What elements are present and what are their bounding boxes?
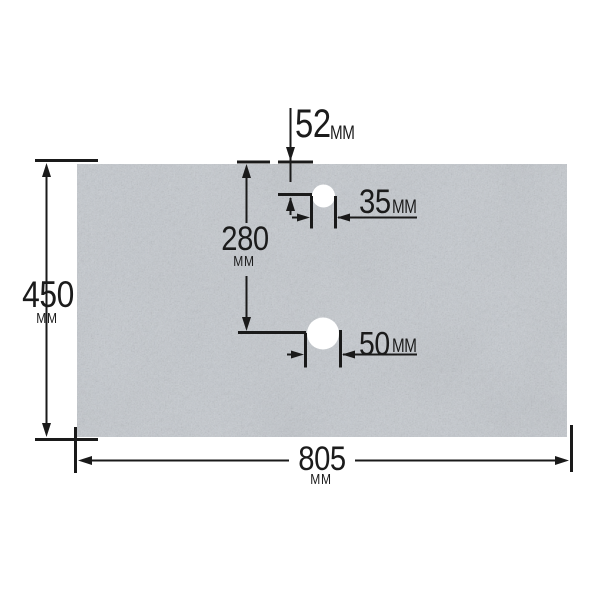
dim-hole1-width-value: 35	[359, 185, 391, 219]
arrowhead-down	[42, 423, 51, 437]
arrowhead-right	[291, 351, 304, 359]
arrowhead-down	[242, 317, 251, 331]
arrowhead-left	[78, 456, 92, 465]
arrowhead-up	[242, 164, 251, 178]
dim-width-unit: мм	[273, 472, 369, 487]
arrowhead-left	[337, 214, 350, 222]
arrowhead-right	[555, 456, 569, 465]
dim-hole2-width-unit: мм	[392, 337, 417, 356]
hole-bottom	[307, 318, 339, 350]
dim-height-unit: мм	[0, 311, 95, 326]
dim-hole1-width-unit: мм	[392, 198, 417, 217]
arrowhead-left	[342, 351, 355, 359]
dimension-diagram: 450 мм 805 мм 280 мм 52 мм 35 мм 50 мм	[0, 0, 600, 600]
hole-top	[312, 185, 335, 208]
arrowhead-right	[297, 214, 310, 222]
arrowhead-down	[286, 147, 295, 161]
dim-height-value: 450	[0, 276, 100, 313]
dim-hole2-offset-unit: мм	[196, 254, 292, 269]
arrowhead-up	[286, 197, 295, 211]
dim-hole1-offset-value: 52	[295, 104, 331, 144]
dim-hole2-width-value: 50	[359, 327, 390, 360]
arrowhead-up	[42, 163, 51, 177]
dim-hole2-offset-value: 280	[193, 222, 296, 256]
dim-hole1-offset-unit: мм	[330, 124, 355, 143]
